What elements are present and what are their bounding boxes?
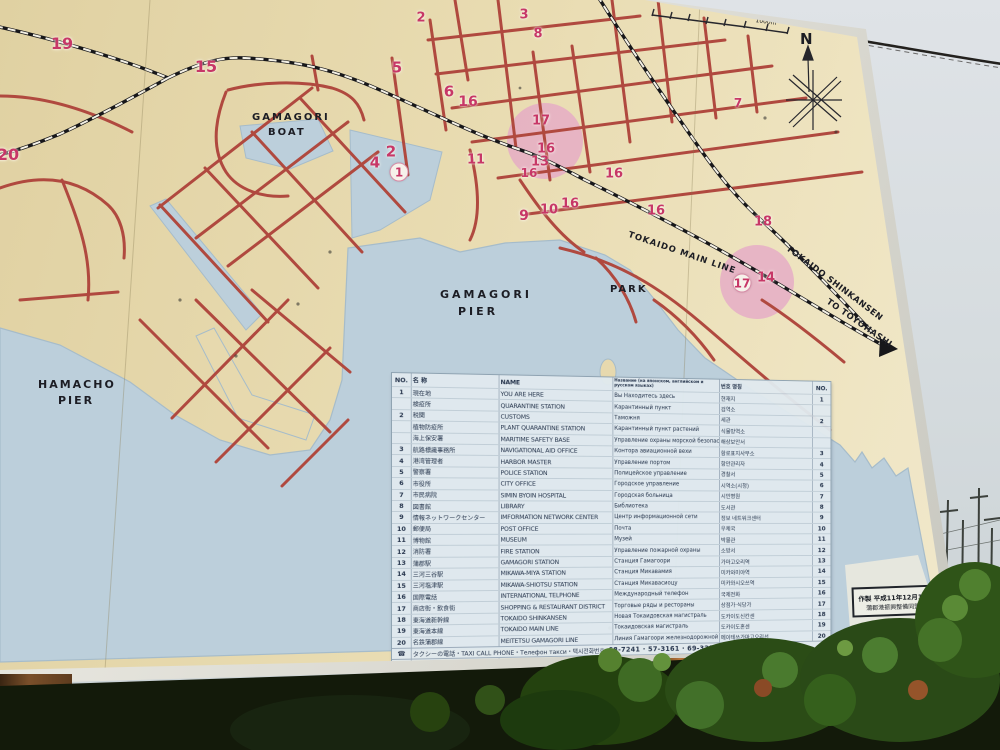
row-english: NAVIGATIONAL AID OFFICE: [500, 445, 614, 456]
row-number-right: [813, 438, 831, 448]
legend-row: 10郵便局POST OFFICEПочта우체국10: [392, 523, 830, 534]
row-english: MEITETSU GAMAGORI LINE: [500, 634, 614, 646]
row-japanese: 東海道本線: [412, 625, 500, 637]
row-number-right: 4: [813, 459, 831, 469]
label-park: PARK: [610, 284, 648, 295]
map-marker-2: 2: [416, 12, 425, 25]
header-no2: NO.: [813, 382, 831, 395]
row-number-right: 18: [813, 609, 831, 619]
row-number: 18: [392, 615, 412, 626]
row-english: CUSTOMS: [500, 411, 614, 423]
legend-row: 11博物館MUSEUMМузей박물관11: [392, 533, 830, 545]
row-number: 15: [392, 580, 412, 591]
row-number-right: 2: [813, 416, 831, 426]
row-japanese: 海上保安署: [412, 433, 500, 444]
row-number: 8: [392, 501, 412, 511]
row-japanese: 航路標識事務所: [412, 444, 500, 455]
row-korean: 가마고오리역: [720, 556, 813, 566]
row-number-right: 12: [813, 545, 831, 555]
row-japanese: 港湾管理者: [412, 456, 500, 467]
row-korean: 소방서: [720, 545, 813, 555]
row-korean: 시역소(시청): [720, 480, 813, 490]
row-japanese: 警察署: [412, 467, 500, 478]
row-english: MUSEUM: [500, 535, 614, 545]
row-russian: Контора авиационной вехи: [613, 446, 720, 457]
row-russian: Городское управление: [613, 479, 720, 490]
row-english: PLANT QUARANTINE STATION: [500, 423, 614, 435]
row-english: YOU ARE HERE: [500, 389, 614, 401]
label-gamagori-pier-line2: PIER: [458, 305, 498, 318]
row-number: 13: [392, 558, 412, 568]
row-english: MIKAWA-SHIOTSU STATION: [500, 579, 614, 590]
photo-scene: GAMAGORI BOAT GAMAGORI PIER HAMACHO PIER…: [0, 0, 1000, 750]
map-marker-17: 17: [532, 115, 550, 128]
row-russian: Центр информационной сети: [613, 513, 720, 523]
header-russian: Название (на японском, английском и русс…: [613, 378, 720, 393]
row-number: 4: [392, 455, 412, 466]
row-number-right: 10: [813, 524, 831, 534]
row-number-right: 1: [813, 395, 831, 405]
row-japanese: 郵便局: [412, 524, 500, 534]
row-number: 20: [392, 637, 412, 648]
label-hamacho-pier-line2: PIER: [58, 394, 94, 407]
row-number-right: 5: [813, 470, 831, 480]
row-english: HARBOR MASTER: [500, 456, 614, 467]
label-north: N: [800, 30, 813, 48]
maker-organization: 蒲郡港振興整備同盟会: [866, 600, 926, 611]
row-number: 3: [392, 444, 412, 455]
row-korean: 도카이도신칸센: [720, 609, 813, 620]
row-russian: Станция Гамагоори: [613, 556, 720, 567]
sign-post: [656, 658, 700, 750]
row-korean: 현재지: [720, 393, 813, 405]
row-japanese: 名鉄蒲郡線: [412, 636, 500, 648]
row-english: MIKAWA-MIYA STATION: [500, 568, 614, 579]
map-marker-4: 4: [370, 156, 380, 171]
row-english: SHOPPING & RESTAURANT DISTRICT: [500, 601, 614, 613]
row-russian: Линия Гамагоори железнодорожной компании: [613, 632, 720, 644]
map-marker-1: 1: [390, 163, 409, 182]
map-marker-11: 11: [467, 154, 485, 167]
row-number: 12: [392, 546, 412, 556]
row-english: TOKAIDO MAIN LINE: [500, 623, 614, 635]
railway-meitetsu-line: [0, 78, 168, 156]
map-marker-8: 8: [533, 28, 542, 41]
row-number-right: 3: [813, 448, 831, 458]
row-japanese: 博物館: [412, 535, 500, 546]
row-russian: Полицейское управление: [613, 468, 720, 479]
row-number-right: 8: [813, 502, 831, 512]
row-english: QUARANTINE STATION: [500, 400, 614, 412]
row-korean: 도서관: [720, 502, 813, 512]
map-marker-3: 3: [519, 9, 528, 22]
map-marker-17: 17: [733, 274, 752, 293]
map-marker-14: 14: [757, 272, 775, 285]
row-russian: Городская больница: [613, 491, 720, 501]
row-number-right: 17: [813, 599, 831, 609]
row-korean: 시민병원: [720, 491, 813, 501]
row-number-right: 7: [813, 491, 831, 501]
row-number-right: [813, 427, 831, 437]
row-japanese: 消防署: [412, 546, 500, 557]
row-korean: 미카와미야역: [720, 567, 813, 578]
map-marker-16: 16: [561, 198, 579, 211]
row-number-right: 11: [813, 534, 831, 544]
legend-row: 7市民病院SIMIN BYOIN HOSPITALГородская больн…: [392, 489, 830, 502]
legend-table: NO.名 称NAMEНазвание (на японском, английс…: [391, 372, 831, 672]
row-korean: 식물방역소: [720, 426, 813, 437]
row-number: 9: [392, 512, 412, 522]
row-russian: Вы Находитесь здесь: [613, 391, 720, 403]
row-number: 5: [392, 467, 412, 478]
row-english: SIMIN BYOIN HOSPITAL: [500, 490, 614, 501]
label-gamagori-boat-line1: GAMAGORI: [252, 112, 330, 123]
row-number: 10: [392, 524, 412, 534]
row-number-right: 20: [813, 631, 831, 641]
row-japanese: 蒲郡駅: [412, 557, 500, 568]
row-russian: Управление пожарной охраны: [613, 545, 720, 555]
overhead-cable: [857, 40, 1000, 64]
row-korean: 항로표지사무소: [720, 447, 813, 458]
row-russian: Международный телефон: [613, 589, 720, 600]
row-number: 1: [392, 387, 412, 398]
row-korean: 도카이도혼센: [720, 620, 813, 631]
row-korean: 검역소: [720, 404, 813, 415]
row-korean: 정보 네트워크센터: [720, 513, 813, 523]
row-russian: Станция Микавасиоцу: [613, 578, 720, 589]
row-korean: 경찰서: [720, 469, 813, 479]
row-english: POLICE STATION: [500, 468, 614, 479]
row-korean: 항만관리자: [720, 458, 813, 469]
row-russian: Торговые ряды и рестораны: [613, 600, 720, 611]
row-number-right: 6: [813, 481, 831, 491]
row-number: 14: [392, 569, 412, 580]
maker-info-box: 作製 平成11年12月19日 蒲郡港振興整備同盟会: [852, 584, 941, 617]
row-number: 11: [392, 535, 412, 545]
row-korean: 해상보안서: [720, 437, 813, 448]
row-japanese: 三河三谷駅: [412, 569, 500, 580]
map-marker-16: 16: [458, 95, 477, 109]
map-marker-5: 5: [392, 61, 402, 76]
label-hamacho-pier-line1: HAMACHO: [38, 378, 116, 391]
row-number: 19: [392, 626, 412, 637]
row-japanese: 植物防疫所: [412, 421, 500, 432]
map-marker-19: 19: [51, 36, 73, 52]
row-japanese: 税関: [412, 410, 500, 422]
map-marker-20: 20: [0, 147, 19, 163]
row-korean: 박물관: [720, 534, 813, 544]
row-number: 6: [392, 478, 412, 488]
header-korean: 번호 명칭: [720, 380, 813, 394]
map-marker-9: 9: [519, 209, 529, 223]
row-japanese: 検疫所: [412, 399, 500, 411]
row-japanese: 東海道新幹線: [412, 613, 500, 624]
row-number-right: 14: [813, 566, 831, 576]
row-english: LIBRARY: [500, 501, 614, 511]
map-marker-10: 10: [540, 204, 558, 217]
row-number-right: 15: [813, 577, 831, 587]
row-russian: Токаидовская магистраль: [613, 622, 720, 634]
row-number: 7: [392, 490, 412, 500]
row-japanese: 三河塩津駅: [412, 580, 500, 591]
row-japanese: 図書館: [412, 501, 500, 511]
row-number-right: 19: [813, 620, 831, 630]
row-korean: 세관: [720, 415, 813, 426]
row-number: 16: [392, 592, 412, 603]
row-english: POST OFFICE: [500, 524, 614, 534]
phone-icon: ☎: [392, 649, 412, 660]
row-number-right: [813, 406, 831, 416]
taxi-phone-numbers: 68-7241 · 57-3161 · 69-3211: [608, 645, 718, 655]
map-marker-18: 18: [754, 216, 772, 229]
legend-row: 12消防署FIRE STATIONУправление пожарной охр…: [392, 544, 830, 557]
row-number-right: 16: [813, 588, 831, 598]
row-russian: Станция Микавамия: [613, 567, 720, 578]
row-russian: Новая Токаидовская магистраль: [613, 611, 720, 622]
row-korean: 우체국: [720, 524, 813, 534]
map-marker-2: 2: [386, 145, 396, 160]
header-japanese: 名 称: [412, 373, 500, 388]
row-number-right: 13: [813, 556, 831, 566]
compass-rose: [786, 46, 842, 130]
header-no: NO.: [392, 373, 412, 386]
row-number: [392, 421, 412, 432]
map-marker-15: 15: [195, 59, 217, 75]
row-number: 2: [392, 410, 412, 421]
sign-board: GAMAGORI BOAT GAMAGORI PIER HAMACHO PIER…: [0, 0, 1000, 750]
row-english: MARITIME SAFETY BASE: [500, 434, 614, 445]
row-number: [392, 398, 412, 409]
row-japanese: 情報ネットワークセンター: [412, 512, 500, 522]
row-russian: Музей: [613, 534, 720, 544]
row-korean: 국제전화: [720, 588, 813, 599]
row-english: FIRE STATION: [500, 546, 614, 557]
row-korean: 상점가·식당가: [720, 599, 813, 610]
row-english: IMFORMATION NETWORK CENTER: [500, 512, 614, 522]
row-english: CITY OFFICE: [500, 479, 614, 490]
label-gamagori-pier-line1: GAMAGORI: [440, 288, 532, 301]
row-korean: 메이테쓰가마고오리선: [720, 631, 813, 642]
map-marker-6: 6: [444, 85, 454, 100]
row-japanese: 市役所: [412, 478, 500, 489]
label-gamagori-boat-line2: BOAT: [268, 127, 306, 138]
row-number: [392, 433, 412, 444]
row-russian: Библиотека: [613, 502, 720, 512]
row-russian: Управление охраны морской безопасности: [613, 435, 720, 446]
legend-row: 8図書館LIBRARYБиблиотека도서관8: [392, 500, 830, 512]
header-english: NAME: [500, 375, 614, 390]
row-number-right: 9: [813, 513, 831, 523]
cable-twist: [860, 44, 1000, 68]
row-russian: Управление портом: [613, 457, 720, 468]
row-russian: Карантинный пункт растений: [613, 424, 720, 435]
row-japanese: 現在地: [412, 387, 500, 399]
row-english: INTERNATIONAL TELPHONE: [500, 590, 614, 601]
row-number: 17: [392, 603, 412, 614]
row-english: GAMAGORI STATION: [500, 557, 614, 568]
row-japanese: 市民病院: [412, 490, 500, 501]
legend-row: 9情報ネットワークセンターIMFORMATION NETWORK CENTERЦ…: [392, 511, 830, 522]
row-russian: Карантинный пункт: [613, 402, 720, 414]
map-marker-7: 7: [734, 97, 742, 109]
row-russian: Почта: [613, 524, 720, 534]
row-english: TOKAIDO SHINKANSEN: [500, 612, 614, 624]
row-japanese: 国際電話: [412, 591, 500, 602]
map-marker-16: 16: [521, 167, 538, 179]
row-japanese: 商店街・飲食街: [412, 602, 500, 613]
row-russian: Таможня: [613, 413, 720, 425]
wooden-post: [0, 674, 72, 750]
map-marker-16: 16: [605, 168, 623, 181]
row-korean: 미카와시오쓰역: [720, 577, 813, 588]
map-marker-16: 16: [647, 205, 665, 218]
